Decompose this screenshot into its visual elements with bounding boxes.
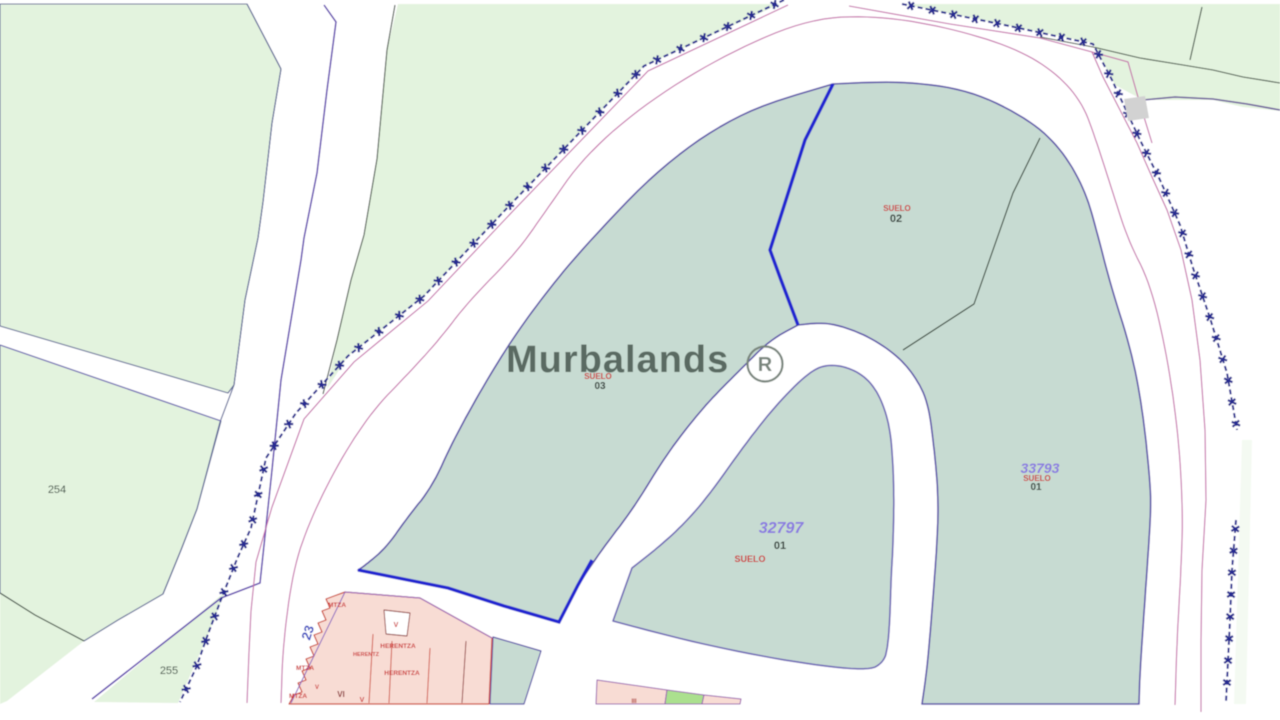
svg-text:MTZA: MTZA	[296, 665, 314, 672]
svg-text:SUELO: SUELO	[883, 204, 911, 213]
svg-text:SUELO: SUELO	[734, 554, 765, 564]
svg-text:V: V	[360, 697, 365, 704]
svg-text:VI: VI	[337, 690, 345, 699]
svg-text:III: III	[631, 699, 636, 705]
svg-text:R: R	[758, 354, 773, 376]
svg-text:MTZA: MTZA	[328, 602, 346, 609]
svg-text:254: 254	[48, 484, 66, 496]
svg-text:255: 255	[160, 665, 178, 677]
svg-text:MTZA: MTZA	[289, 693, 307, 700]
svg-text:V: V	[394, 622, 399, 629]
svg-text:HERENTZ: HERENTZ	[353, 652, 380, 658]
svg-text:02: 02	[890, 213, 902, 225]
svg-text:01: 01	[1030, 482, 1042, 493]
svg-text:Murbalands: Murbalands	[506, 339, 729, 381]
svg-text:SUELO: SUELO	[584, 372, 612, 381]
svg-text:HERENTZA: HERENTZA	[380, 643, 416, 650]
svg-text:03: 03	[594, 381, 606, 392]
svg-text:32797: 32797	[759, 520, 805, 537]
svg-text:HERENTZA: HERENTZA	[384, 670, 420, 677]
svg-text:01: 01	[774, 540, 786, 552]
svg-text:V: V	[315, 685, 319, 691]
